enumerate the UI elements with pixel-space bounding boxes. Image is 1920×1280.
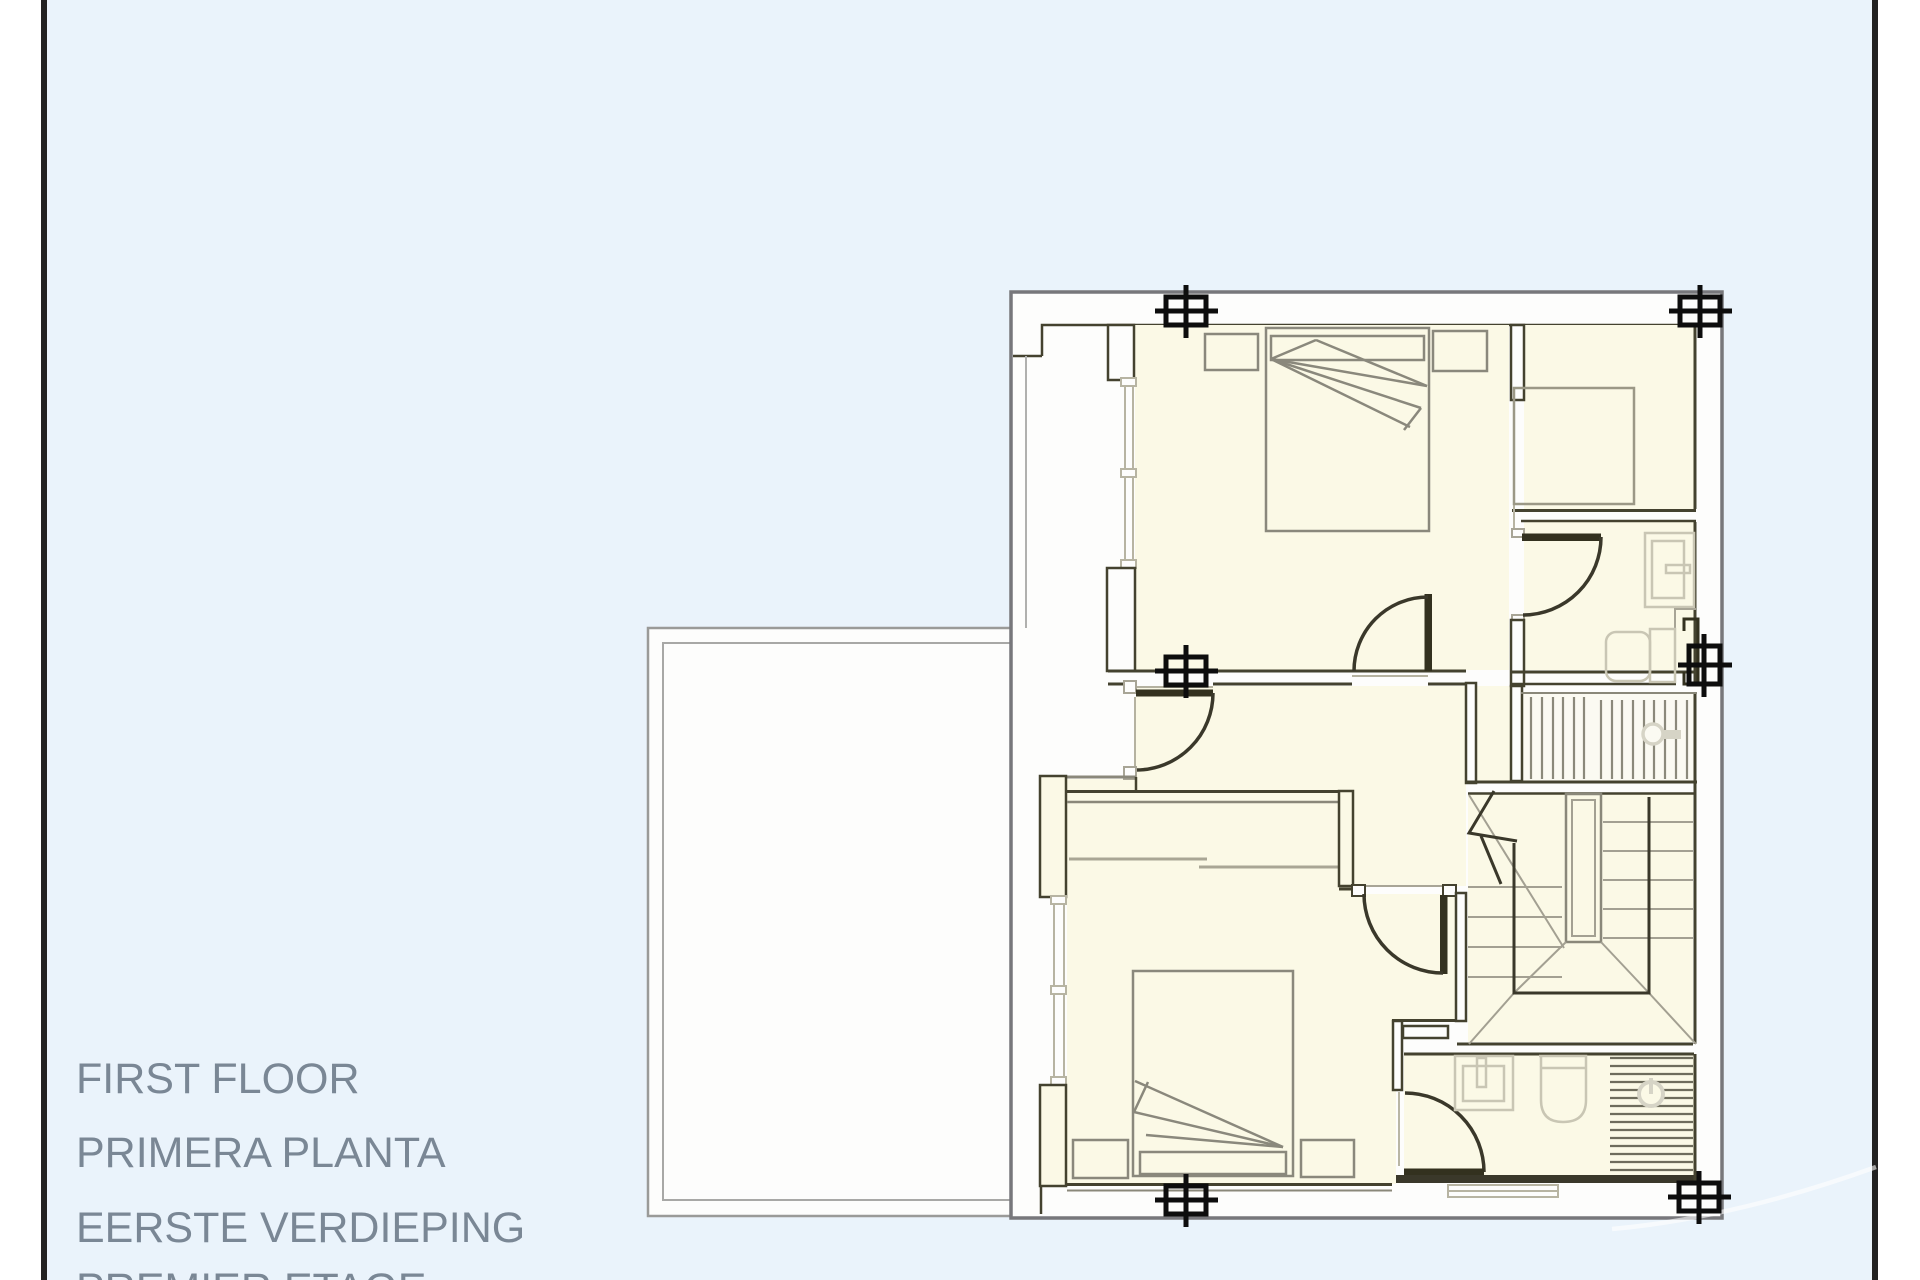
svg-text:PREMIER ETAGE: PREMIER ETAGE	[76, 1265, 426, 1280]
svg-text:EERSTE VERDIEPING: EERSTE VERDIEPING	[76, 1204, 525, 1252]
svg-text:FIRST FLOOR: FIRST FLOOR	[76, 1055, 360, 1103]
svg-text:PRIMERA PLANTA: PRIMERA PLANTA	[76, 1129, 446, 1177]
